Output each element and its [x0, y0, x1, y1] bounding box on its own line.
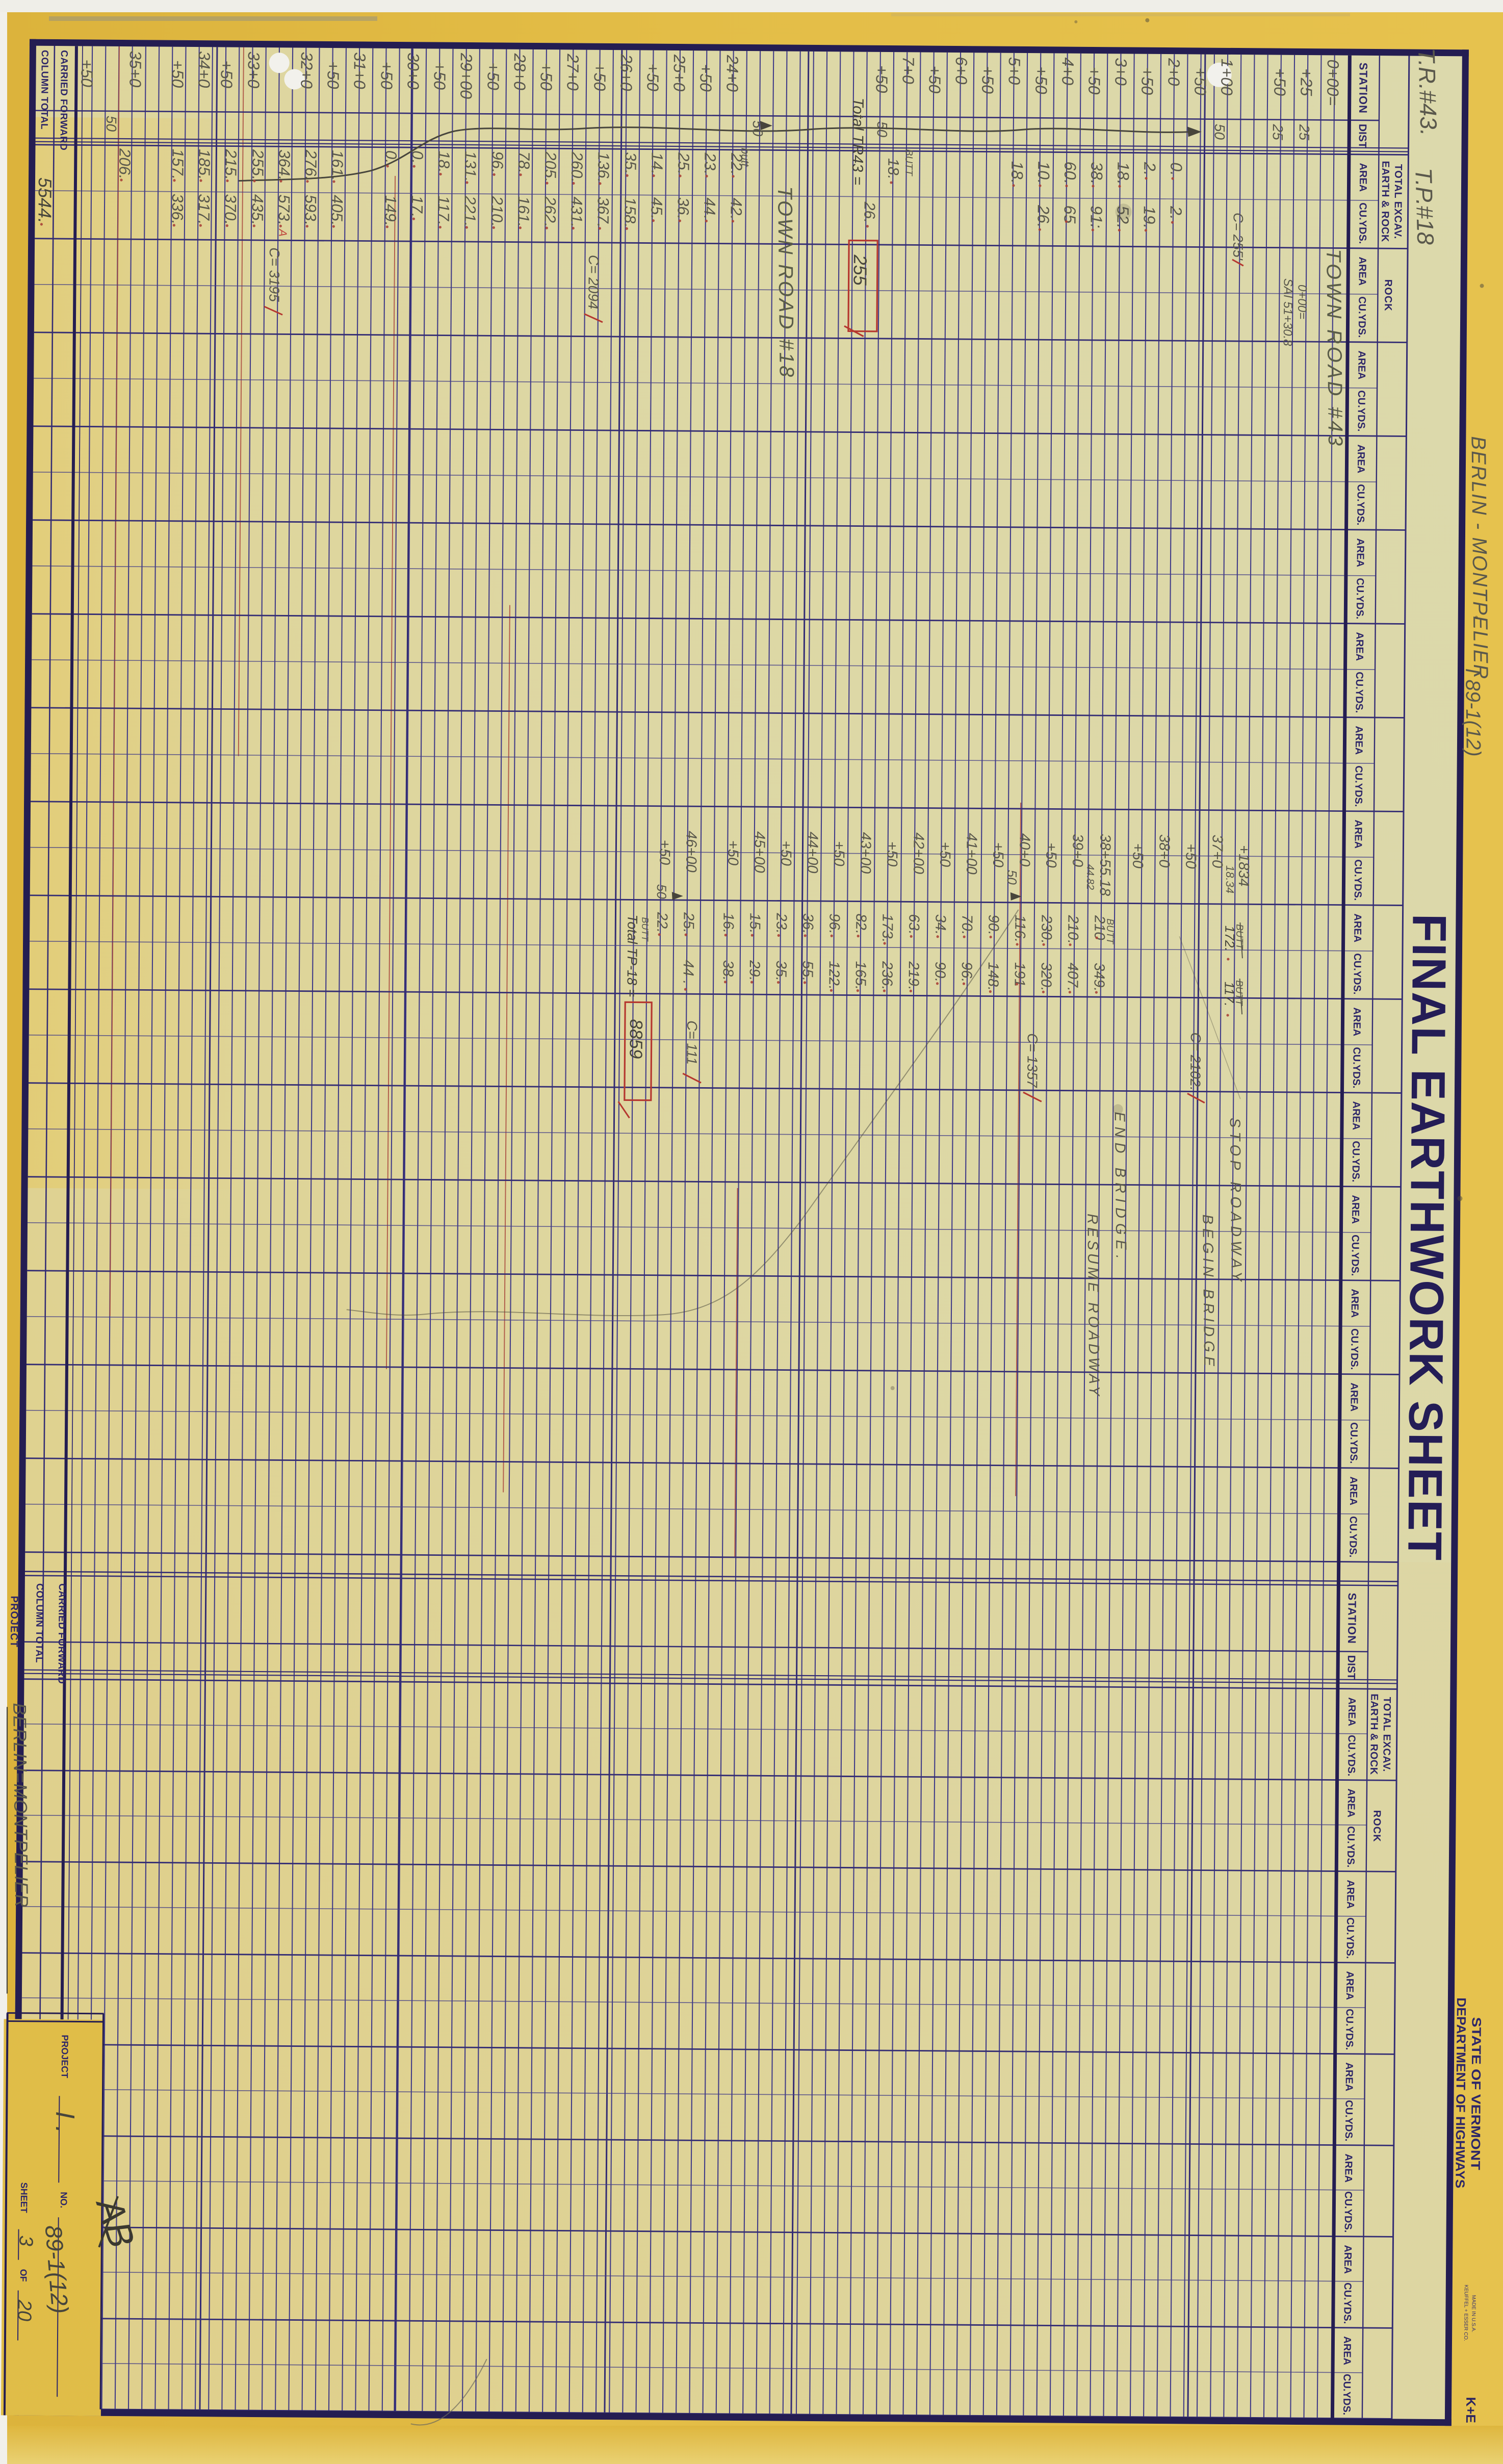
svg-text:96.: 96. [826, 913, 842, 934]
svg-text:38+0: 38+0 [1156, 834, 1172, 868]
svg-text:25+0: 25+0 [670, 54, 689, 92]
svg-text:18.34: 18.34 [1224, 865, 1236, 893]
svg-text:AREA: AREA [1356, 350, 1367, 379]
svg-text:37+0: 37+0 [1209, 835, 1225, 868]
svg-text:+50: +50 [643, 63, 662, 91]
svg-text:+50: +50 [831, 841, 847, 866]
svg-text:63.: 63. [905, 914, 922, 935]
svg-text:+50: +50 [430, 62, 449, 90]
svg-text:T.P.#18: T.P.#18 [1410, 167, 1439, 245]
svg-text:AREA: AREA [1353, 726, 1364, 755]
svg-text:CARRIED FORWARD: CARRIED FORWARD [58, 50, 69, 150]
svg-text:AREA: AREA [1342, 2153, 1354, 2183]
svg-text:C= 2094: C= 2094 [585, 255, 602, 310]
svg-text:AREA: AREA [1349, 1289, 1360, 1318]
svg-text:DIST: DIST [1357, 124, 1368, 148]
svg-text:364.: 364. [275, 149, 293, 181]
svg-text:117.: 117. [1222, 982, 1237, 1007]
svg-text:STATE OF VERMONT: STATE OF VERMONT [1468, 2017, 1483, 2170]
svg-text:SHEET: SHEET [19, 2183, 29, 2213]
svg-text:TOWN ROAD #43: TOWN ROAD #43 [1322, 249, 1346, 448]
svg-text:CU.YDS.: CU.YDS. [1356, 296, 1368, 338]
svg-text:COLUMN TOTAL: COLUMN TOTAL [34, 1583, 45, 1663]
svg-text:CU.YDS.: CU.YDS. [1355, 390, 1367, 431]
svg-text:317.: 317. [195, 194, 213, 225]
svg-text:+50: +50 [937, 842, 953, 867]
svg-text:BEGIN BRIDGE: BEGIN BRIDGE [1199, 1214, 1217, 1370]
svg-text:262.: 262. [541, 196, 559, 227]
svg-text:28+0: 28+0 [510, 53, 529, 91]
svg-text:96.: 96. [488, 151, 506, 173]
svg-text:+50: +50 [925, 66, 944, 94]
svg-text:82.: 82. [852, 914, 869, 935]
svg-text:40+0: 40+0 [1016, 833, 1032, 867]
svg-text:CU.YDS.: CU.YDS. [1349, 1235, 1361, 1276]
svg-text:STATION: STATION [1345, 1593, 1359, 1644]
svg-text:185.: 185. [195, 149, 213, 180]
svg-text:91:: 91: [1087, 206, 1105, 228]
svg-text:165.: 165. [852, 961, 868, 990]
svg-text:BUTT: BUTT [640, 917, 650, 942]
svg-text:349.: 349. [1091, 963, 1107, 992]
svg-text:0+00=: 0+00= [1324, 59, 1342, 106]
svg-text:42.: 42. [727, 198, 745, 220]
svg-text:+50: +50 [696, 64, 715, 92]
svg-text:46+00: 46+00 [683, 831, 699, 872]
svg-text:+50: +50 [1129, 843, 1146, 868]
svg-text:MADE IN U.S.A.: MADE IN U.S.A. [1470, 2295, 1476, 2332]
svg-text:45+00: 45+00 [751, 831, 768, 873]
svg-text:2+0: 2+0 [1164, 58, 1183, 86]
svg-text:158.: 158. [621, 197, 639, 228]
svg-text:CU.YDS.: CU.YDS. [1353, 765, 1364, 807]
svg-text:30+0: 30+0 [404, 53, 423, 90]
svg-text:90.: 90. [985, 914, 1001, 935]
svg-text:2.: 2. [1167, 206, 1185, 220]
svg-text:NO.: NO. [59, 2192, 69, 2208]
svg-text:90.: 90. [932, 962, 948, 983]
svg-text:+50: +50 [1138, 67, 1156, 95]
svg-text:24+0: 24+0 [723, 55, 742, 92]
svg-text:26.: 26. [1034, 204, 1052, 228]
svg-text:COLUMN TOTAL: COLUMN TOTAL [39, 50, 50, 130]
svg-text:A: A [276, 228, 289, 237]
svg-text:CU.YDS.: CU.YDS. [1343, 2100, 1355, 2141]
svg-text:44.: 44. [701, 197, 718, 219]
svg-text:78.: 78. [515, 151, 533, 173]
svg-text:BUTT: BUTT [1104, 918, 1115, 944]
svg-text:+50: +50 [872, 65, 891, 93]
svg-text:PROJECT: PROJECT [8, 1596, 20, 1648]
svg-text:CU.YDS.: CU.YDS. [1352, 859, 1364, 901]
svg-text:38.: 38. [720, 960, 736, 981]
svg-text:CU.YDS.: CU.YDS. [1341, 2374, 1353, 2415]
svg-text:CU.YDS.: CU.YDS. [1350, 1141, 1362, 1182]
svg-text:AREA: AREA [1347, 1476, 1359, 1505]
svg-text:10.: 10. [1034, 161, 1053, 184]
svg-text:70.: 70. [958, 914, 975, 935]
svg-text:27+0: 27+0 [563, 53, 582, 91]
svg-text:255: 255 [850, 254, 871, 286]
svg-text:18.: 18. [435, 151, 453, 173]
svg-text:AREA: AREA [1345, 1788, 1357, 1817]
svg-text:CU.YDS.: CU.YDS. [1354, 578, 1366, 619]
svg-text:173.: 173. [879, 914, 895, 943]
svg-text:STATION: STATION [1357, 63, 1370, 114]
svg-text:35.: 35. [621, 152, 639, 174]
svg-text:7+0: 7+0 [899, 56, 917, 84]
svg-text:60.: 60. [1061, 162, 1079, 185]
svg-text:260.: 260. [568, 151, 586, 183]
svg-text:5+0: 5+0 [1005, 57, 1023, 85]
svg-text:AREA: AREA [1357, 163, 1368, 192]
svg-text:367.: 367. [594, 197, 612, 228]
svg-text:19.: 19. [1140, 206, 1158, 229]
svg-text:205.: 205. [541, 151, 559, 183]
svg-text:191: 191 [1011, 962, 1027, 987]
svg-text:AREA: AREA [1354, 632, 1365, 661]
svg-text:20: 20 [13, 2299, 35, 2322]
svg-text:+50: +50 [978, 66, 997, 94]
svg-text:AREA: AREA [1352, 819, 1363, 849]
svg-text:230.: 230. [1038, 914, 1054, 944]
svg-text:TOTAL EXCAV.: TOTAL EXCAV. [1392, 164, 1404, 239]
svg-text:+50: +50 [1191, 67, 1209, 95]
svg-text:15.: 15. [746, 913, 763, 934]
svg-text:ROCK: ROCK [1371, 1810, 1382, 1842]
svg-text:FINAL EARTHWORK SHEET: FINAL EARTHWORK SHEET [1398, 913, 1456, 1561]
svg-text:CU.YDS.: CU.YDS. [1355, 484, 1366, 525]
svg-text:CU.YDS.: CU.YDS. [1344, 1917, 1356, 1959]
svg-text:C= 111: C= 111 [684, 1020, 700, 1065]
svg-text:157.: 157. [169, 149, 187, 180]
svg-text:Total TP-18 =: Total TP-18 = [624, 914, 640, 997]
svg-text:25: 25 [1297, 124, 1312, 141]
svg-text:+50: +50 [590, 63, 609, 91]
svg-text:BUTT: BUTT [903, 149, 914, 176]
svg-text:KEUFFEL + ESSER CO.: KEUFFEL + ESSER CO. [1463, 2285, 1469, 2341]
svg-text:+25: +25 [1297, 68, 1315, 96]
svg-text:320.: 320. [1038, 962, 1054, 991]
svg-text:K+E: K+E [1463, 2397, 1479, 2423]
svg-text:221.: 221. [461, 195, 479, 227]
svg-text:34+0: 34+0 [195, 51, 214, 88]
svg-text:41+00: 41+00 [963, 833, 980, 875]
svg-text:65: 65 [1060, 206, 1079, 224]
svg-text:336.: 336. [168, 194, 186, 225]
svg-text:39+0: 39+0 [1069, 834, 1085, 867]
svg-text:+50: +50 [778, 840, 794, 865]
svg-text:42+00: 42+00 [910, 832, 927, 874]
svg-text:+50: +50 [1271, 68, 1289, 96]
svg-text:2.: 2. [1141, 162, 1159, 176]
svg-text:+50: +50 [537, 63, 555, 91]
svg-text:149.: 149. [381, 195, 399, 226]
svg-text:136.: 136. [594, 152, 612, 183]
svg-text:255.: 255. [249, 149, 267, 181]
svg-text:EARTH & ROCK: EARTH & ROCK [1379, 161, 1391, 242]
svg-text:117.: 117. [434, 196, 452, 225]
svg-text:AREA: AREA [1357, 256, 1368, 286]
svg-text:+50: +50 [484, 62, 502, 90]
svg-text:25.: 25. [675, 152, 692, 174]
svg-text:C= 2102.: C= 2102. [1187, 1032, 1204, 1091]
svg-text:38+55.18: 38+55.18 [1097, 834, 1113, 896]
svg-text:CU.YDS.: CU.YDS. [1357, 202, 1368, 244]
svg-text:END BRIDGE.: END BRIDGE. [1111, 1112, 1129, 1264]
svg-text:45.: 45. [647, 197, 665, 219]
svg-text:431.: 431. [567, 196, 585, 227]
svg-text:I 89-1(12): I 89-1(12) [1461, 668, 1485, 757]
svg-text:+50: +50 [168, 60, 187, 88]
svg-text:4+0: 4+0 [1058, 57, 1077, 85]
svg-text:SAI 51+30.8: SAI 51+30.8 [1281, 278, 1295, 347]
svg-text:CU.YDS.: CU.YDS. [1351, 1047, 1362, 1088]
svg-text:25: 25 [1270, 124, 1286, 141]
svg-text:236.: 236. [878, 961, 895, 990]
svg-text:44+00: 44+00 [804, 832, 821, 874]
svg-text:ROCK: ROCK [1382, 279, 1393, 312]
svg-text:EARTH & ROCK: EARTH & ROCK [1368, 1693, 1380, 1775]
svg-text:6 6 K 7 0 1 V A D 1 - 2 5: 6 6 K 7 0 1 V A D 1 - 2 5 - 7 0 [0, 2177, 2, 2270]
svg-text:3+0: 3+0 [1111, 58, 1130, 86]
svg-text:+50: +50 [324, 61, 342, 89]
svg-text:+50: +50 [1032, 66, 1050, 94]
svg-text:+50: +50 [884, 841, 900, 866]
svg-text:407.: 407. [1064, 963, 1080, 992]
svg-text:36.: 36. [799, 913, 816, 934]
svg-text:+50: +50 [77, 59, 96, 87]
svg-text:AREA: AREA [1350, 1195, 1361, 1224]
svg-text:36.: 36. [674, 197, 692, 219]
svg-text:25.: 25. [680, 912, 696, 933]
svg-text:AREA: AREA [1344, 1971, 1355, 2000]
svg-text:131.: 131. [461, 151, 479, 182]
svg-text:50: 50 [1212, 124, 1228, 140]
svg-text:CU.YDS.: CU.YDS. [1351, 953, 1363, 994]
svg-text:14.: 14. [648, 152, 666, 174]
svg-text:32+0: 32+0 [297, 52, 316, 89]
svg-text:44.82: 44.82 [1084, 864, 1096, 890]
svg-text:C= 1357: C= 1357 [1024, 1033, 1041, 1088]
svg-text:AREA: AREA [1355, 444, 1366, 473]
svg-text:17.: 17. [408, 195, 426, 217]
svg-text:116.: 116. [1012, 915, 1028, 943]
svg-text:BERLIN - MONTPELIER: BERLIN - MONTPELIER [1467, 436, 1492, 680]
svg-text:AREA: AREA [1350, 1101, 1361, 1130]
svg-text:370.: 370. [221, 194, 239, 225]
svg-text:29+00: 29+00 [457, 53, 476, 99]
svg-text:CU.YDS.: CU.YDS. [1353, 672, 1365, 713]
svg-text:CU.YDS.: CU.YDS. [1347, 1516, 1359, 1557]
svg-text:TOTAL EXCAV.: TOTAL EXCAV. [1381, 1697, 1392, 1772]
svg-text:50: 50 [654, 884, 669, 900]
svg-text:210.: 210. [488, 195, 506, 227]
svg-text:DEPARTMENT OF HIGHWAYS: DEPARTMENT OF HIGHWAYS [1453, 1997, 1468, 2188]
svg-text:29.: 29. [746, 960, 763, 981]
svg-text:215.: 215. [222, 148, 240, 180]
svg-text:+50: +50 [1182, 843, 1199, 868]
svg-text:435.: 435. [248, 194, 266, 225]
svg-text:BERLIN=MONTPELIER: BERLIN=MONTPELIER [9, 1703, 32, 1908]
svg-text:6+0: 6+0 [952, 57, 970, 85]
svg-text:0.: 0. [408, 150, 426, 164]
svg-text:STOP ROADWAY: STOP ROADWAY [1227, 1118, 1245, 1286]
svg-text:55.: 55. [799, 961, 816, 982]
svg-text:172.: 172. [1222, 926, 1237, 952]
svg-text:26+0: 26+0 [617, 54, 636, 91]
svg-text:22.: 22. [654, 912, 670, 933]
svg-text:206.: 206. [116, 148, 134, 179]
svg-text:C= 255': C= 255' [1230, 213, 1246, 261]
svg-text:CU.YDS.: CU.YDS. [1345, 1826, 1357, 1867]
svg-text:DIST: DIST [1345, 1655, 1357, 1680]
svg-text:96.: 96. [958, 962, 975, 983]
svg-text:+50: +50 [1043, 842, 1059, 867]
svg-text:CU.YDS.: CU.YDS. [1348, 1422, 1360, 1464]
svg-text:CU.YDS.: CU.YDS. [1349, 1328, 1360, 1370]
svg-text:276.: 276. [302, 149, 320, 181]
svg-text:+50: +50 [1085, 67, 1103, 95]
svg-text:23.: 23. [773, 912, 789, 934]
svg-text:AREA: AREA [1346, 1697, 1357, 1726]
svg-text:AREA: AREA [1355, 538, 1366, 567]
svg-text:RESUME ROADWAY: RESUME ROADWAY [1084, 1214, 1102, 1399]
svg-text:+1834: +1834 [1235, 845, 1252, 887]
svg-text:23.: 23. [701, 152, 719, 174]
svg-text:219.: 219. [905, 961, 921, 990]
svg-text:0+00=: 0+00= [1295, 285, 1309, 319]
svg-text:AREA: AREA [1351, 1007, 1362, 1036]
svg-text:+50: +50 [990, 842, 1006, 867]
svg-text:18.: 18. [1114, 162, 1132, 185]
svg-text:3: 3 [15, 2236, 36, 2246]
svg-text:35+0: 35+0 [126, 50, 145, 88]
svg-text:1+00: 1+00 [1217, 59, 1236, 96]
svg-text:5544.: 5544. [34, 177, 56, 223]
svg-text:CU.YDS.: CU.YDS. [1341, 2282, 1353, 2324]
svg-text:AREA: AREA [1343, 2062, 1355, 2091]
svg-text:0.: 0. [382, 150, 400, 164]
svg-text:26.: 26. [861, 201, 877, 223]
svg-text:AREA: AREA [1348, 1382, 1359, 1411]
svg-text:CU.YDS.: CU.YDS. [1342, 2191, 1354, 2232]
svg-text:CU.YDS.: CU.YDS. [1343, 2009, 1355, 2050]
svg-text:+50: +50 [217, 60, 236, 88]
svg-text:AREA: AREA [1352, 913, 1363, 942]
svg-text:31+0: 31+0 [350, 52, 369, 89]
svg-text:C= 3195: C= 3195 [266, 247, 282, 302]
svg-text:AREA: AREA [1341, 2336, 1353, 2365]
svg-text:AREA: AREA [1344, 1880, 1356, 1909]
svg-text:50: 50 [874, 121, 890, 138]
svg-text:148.: 148. [984, 962, 1001, 991]
svg-text:405.: 405. [328, 195, 346, 226]
svg-text:OF: OF [18, 2269, 29, 2282]
svg-text:161.: 161. [514, 196, 532, 227]
svg-text:18.: 18. [885, 158, 901, 179]
svg-text:0.: 0. [1167, 162, 1185, 176]
svg-text:butt: butt [739, 148, 751, 167]
svg-text:44 .: 44 . [680, 960, 696, 985]
svg-text:210.: 210. [1065, 915, 1081, 944]
svg-text:34.: 34. [932, 914, 948, 935]
svg-text:50: 50 [103, 116, 119, 132]
svg-text:I .: I . [50, 2111, 80, 2134]
svg-text:8859: 8859 [626, 1019, 646, 1059]
svg-text:33+0: 33+0 [244, 52, 263, 89]
svg-text:AREA: AREA [1342, 2245, 1353, 2274]
svg-text:122.: 122. [825, 961, 842, 990]
svg-text:Total TR43 =: Total TR43 = [849, 97, 866, 185]
svg-text:38.: 38. [1087, 162, 1106, 185]
svg-text:CARRIED FORWARD: CARRIED FORWARD [56, 1583, 67, 1684]
svg-text:50: 50 [1004, 870, 1020, 885]
svg-text:593.: 593. [301, 195, 319, 226]
svg-text:35.: 35. [773, 960, 789, 981]
svg-text:+50: +50 [724, 840, 741, 865]
svg-text:T.R.#43.: T.R.#43. [1413, 47, 1442, 136]
svg-text:16.: 16. [720, 913, 736, 934]
svg-text:161.: 161. [328, 150, 346, 181]
svg-text:CU.YDS.: CU.YDS. [1345, 1735, 1357, 1776]
svg-text:PROJECT: PROJECT [60, 2035, 70, 2078]
svg-text:+50: +50 [377, 62, 396, 90]
svg-text:18.: 18. [1008, 161, 1026, 184]
svg-text:43+00: 43+00 [857, 832, 874, 874]
svg-text:573.: 573. [275, 194, 293, 225]
svg-text:+50: +50 [656, 840, 672, 865]
svg-text:TOWN ROAD #18: TOWN ROAD #18 [773, 186, 798, 379]
